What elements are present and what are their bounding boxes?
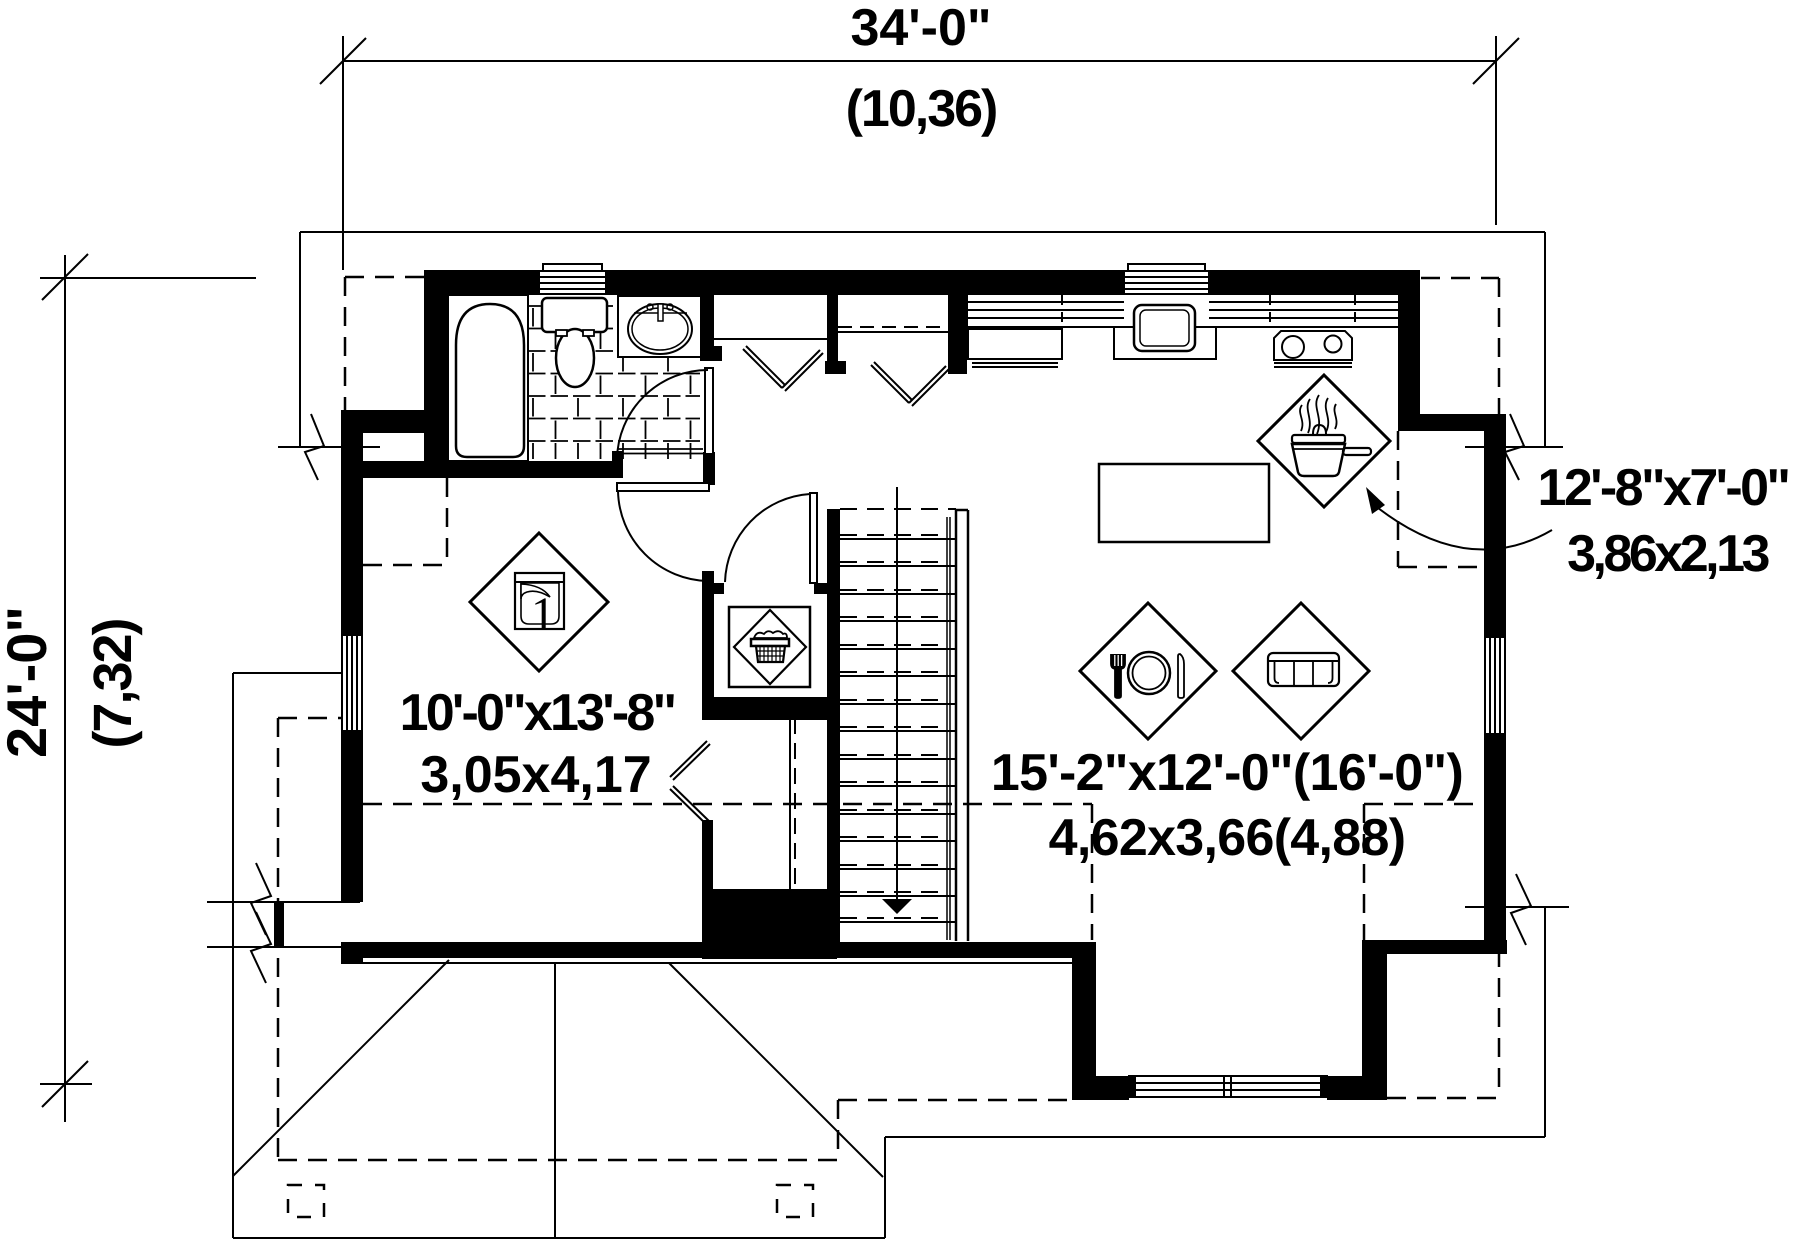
svg-text:3,86x2,13: 3,86x2,13 [1567, 525, 1769, 583]
svg-text:(10,36): (10,36) [846, 80, 997, 138]
svg-text:4,62x3,66(4,88): 4,62x3,66(4,88) [1049, 809, 1406, 867]
svg-text:3,05x4,17: 3,05x4,17 [420, 746, 651, 804]
svg-text:10'-0"x13'-8": 10'-0"x13'-8" [400, 684, 675, 742]
svg-text:(7,32): (7,32) [83, 619, 143, 748]
svg-text:1: 1 [531, 588, 555, 641]
svg-text:34'-0": 34'-0" [850, 0, 991, 57]
svg-text:15'-2"x12'-0"(16'-0"): 15'-2"x12'-0"(16'-0") [991, 744, 1463, 802]
svg-text:12'-8"x7'-0": 12'-8"x7'-0" [1538, 459, 1789, 517]
svg-text:24'-0": 24'-0" [0, 606, 58, 758]
